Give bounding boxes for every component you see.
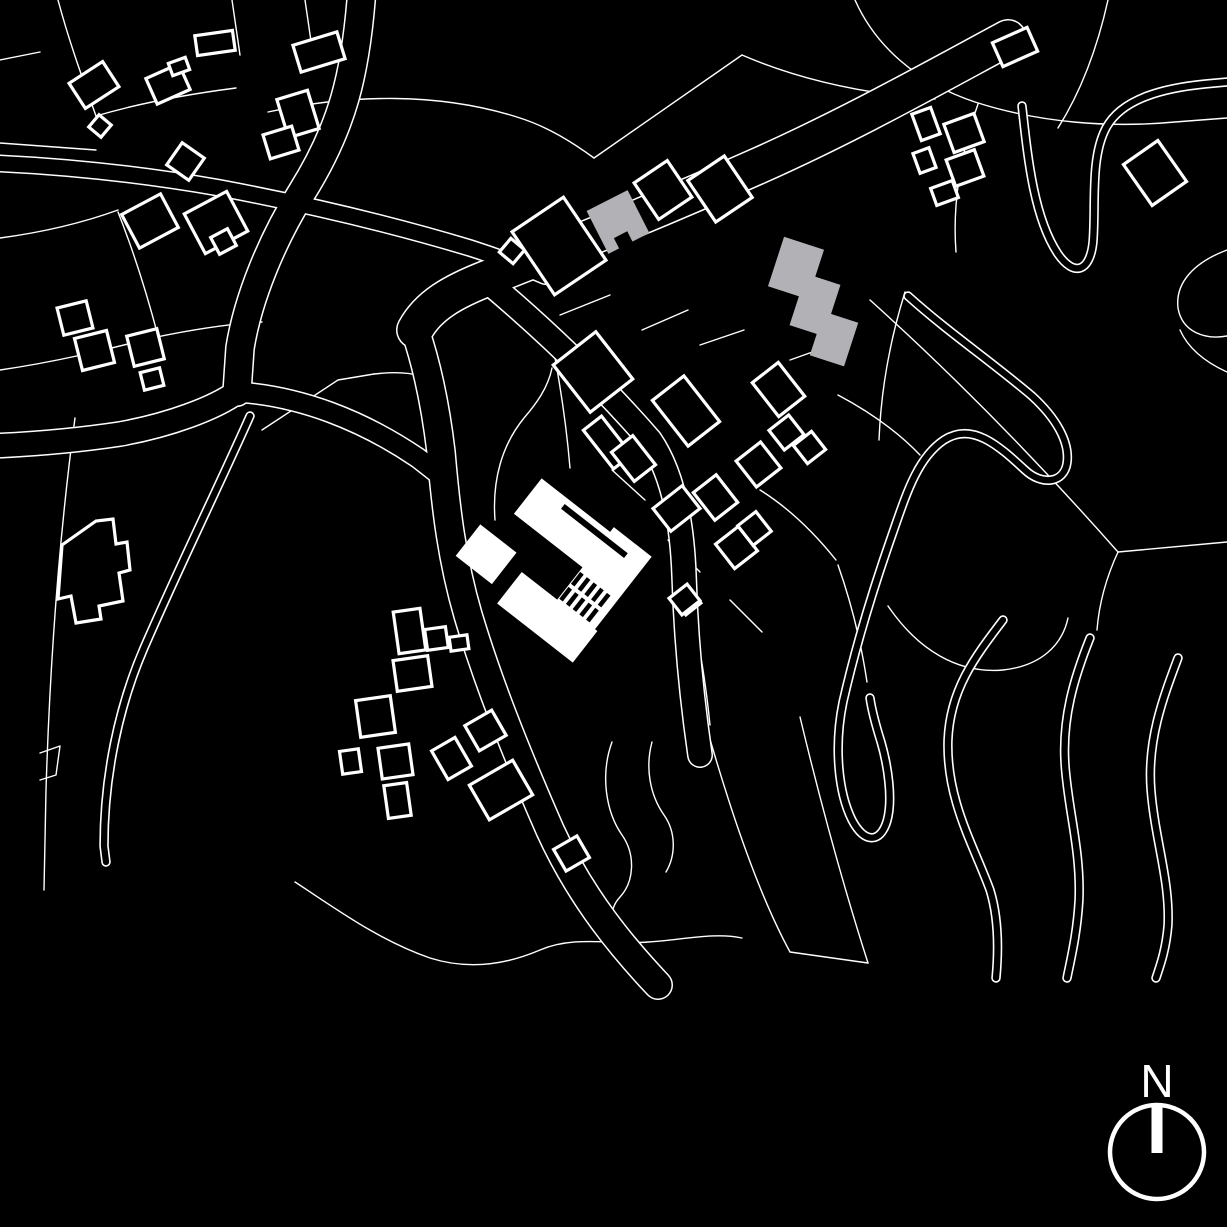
- north-label: N: [1140, 1055, 1173, 1107]
- building-footprint: [140, 368, 164, 390]
- building-footprint: [425, 627, 449, 651]
- building-footprint: [393, 656, 432, 692]
- building-footprint: [339, 749, 361, 774]
- building-footprint: [393, 608, 426, 653]
- building-footprint: [378, 744, 413, 779]
- building-footprint: [384, 783, 411, 819]
- north-arrow-needle: [1152, 1104, 1163, 1153]
- building-footprint: [195, 30, 235, 55]
- site-plan-canvas: N: [0, 0, 1227, 1227]
- building-footprint: [449, 635, 469, 651]
- building-footprint: [57, 301, 93, 335]
- building-footprint: [356, 696, 396, 738]
- building-footprint: [74, 330, 114, 370]
- site-plan-map: N: [0, 0, 1227, 1227]
- building-footprint: [127, 329, 165, 367]
